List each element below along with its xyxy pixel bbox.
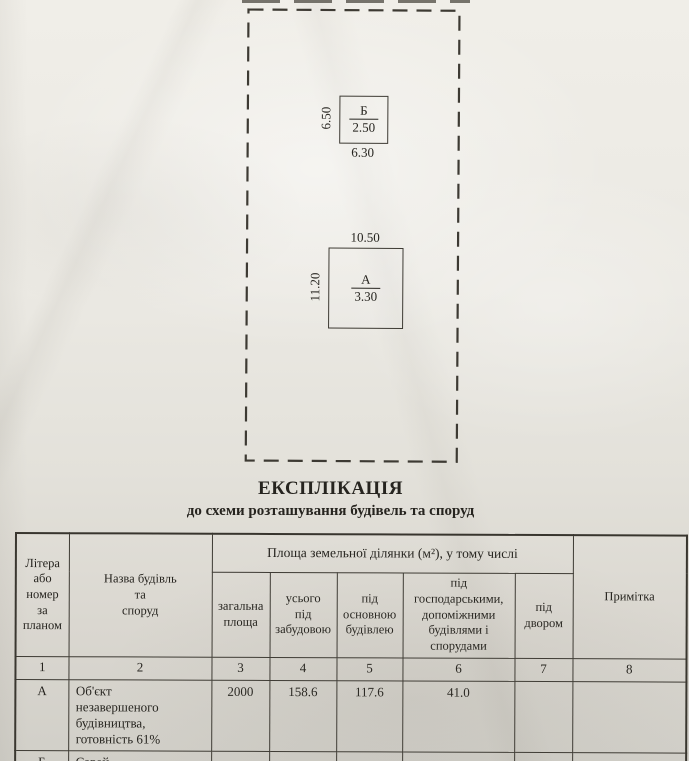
building-a-letter: А — [351, 272, 380, 287]
header-under-construction: усього під забудовою — [270, 572, 337, 657]
row-b-total-area — [211, 751, 269, 761]
row-a-total-area: 2000 — [211, 680, 269, 751]
explication-title-block: ЕКСПЛІКАЦІЯ до схеми розташування будіве… — [0, 479, 675, 520]
header-note: Примітка — [573, 535, 687, 658]
building-a-value: 3.30 — [351, 287, 380, 304]
col-num-5: 5 — [336, 657, 402, 680]
building-a-label: А 3.30 — [351, 272, 380, 304]
explication-table: Літера або номер за планом Назва будівль… — [14, 532, 688, 761]
building-b-letter: Б — [349, 104, 378, 119]
table-row-a: А Об'єкт незавершеного будівництва, гото… — [15, 679, 686, 753]
col-num-2: 2 — [68, 656, 211, 680]
building-b-outline: Б 2.50 — [339, 96, 388, 144]
dimension-b-side: 6.50 — [318, 95, 334, 141]
row-b-under-main — [336, 751, 402, 761]
row-b-note — [572, 752, 686, 761]
row-a-letter: А — [15, 679, 68, 750]
header-under-household: під господарськими, допоміжними будівлям… — [403, 572, 515, 657]
col-num-3: 3 — [211, 657, 269, 680]
dimension-a-side: 11.20 — [307, 247, 323, 326]
dimension-a-width: 10.50 — [329, 230, 402, 246]
building-a-outline: А 3.30 — [328, 248, 403, 329]
building-b-label: Б 2.50 — [349, 104, 378, 136]
header-row-group: Літера або номер за планом Назва будівль… — [16, 533, 687, 574]
col-num-8: 8 — [572, 658, 686, 681]
header-letter: Літера або номер за планом — [16, 533, 69, 656]
header-under-yard: під двором — [515, 573, 573, 658]
row-a-under-main: 117.6 — [336, 680, 402, 751]
row-a-note — [572, 681, 686, 752]
explication-table-wrapper: Літера або номер за планом Назва будівль… — [14, 532, 688, 761]
row-b-name: Сарай — [68, 750, 211, 761]
explication-heading: ЕКСПЛІКАЦІЯ — [0, 479, 675, 500]
scanned-document-page: Б 2.50 6.50 6.30 А 3.30 10.50 11.20 ЕКСП… — [0, 0, 689, 761]
header-area-group: Площа земельної ділянки (м²), у тому чис… — [212, 534, 573, 573]
row-a-under-yard — [514, 681, 572, 752]
row-b-under-construction — [269, 751, 336, 761]
col-num-7: 7 — [514, 658, 572, 681]
explication-subheading: до схеми розташування будівель та споруд — [0, 503, 675, 520]
col-num-4: 4 — [269, 657, 336, 680]
row-b-under-yard — [514, 752, 572, 761]
col-num-6: 6 — [402, 657, 514, 680]
row-b-letter: Б — [15, 750, 68, 761]
header-under-main-building: під основною будівлею — [337, 572, 403, 657]
col-num-1: 1 — [15, 656, 68, 679]
cropped-dashed-line-remnant — [242, 0, 470, 3]
building-b-value: 2.50 — [349, 119, 378, 136]
site-plan-diagram: Б 2.50 6.50 6.30 А 3.30 10.50 11.20 — [244, 8, 461, 463]
row-a-name: Об'єкт незавершеного будівництва, готовн… — [68, 679, 211, 751]
column-number-row: 1 2 3 4 5 6 7 8 — [15, 656, 686, 682]
row-a-under-household: 41.0 — [402, 680, 514, 751]
header-total-area: загальна площа — [212, 572, 270, 657]
row-a-under-construction: 158.6 — [269, 680, 336, 751]
row-b-under-household — [402, 751, 514, 761]
table-row-b: Б Сарай — [15, 750, 686, 761]
dimension-b-width: 6.30 — [339, 145, 386, 161]
header-name: Назва будівль та споруд — [69, 533, 212, 657]
